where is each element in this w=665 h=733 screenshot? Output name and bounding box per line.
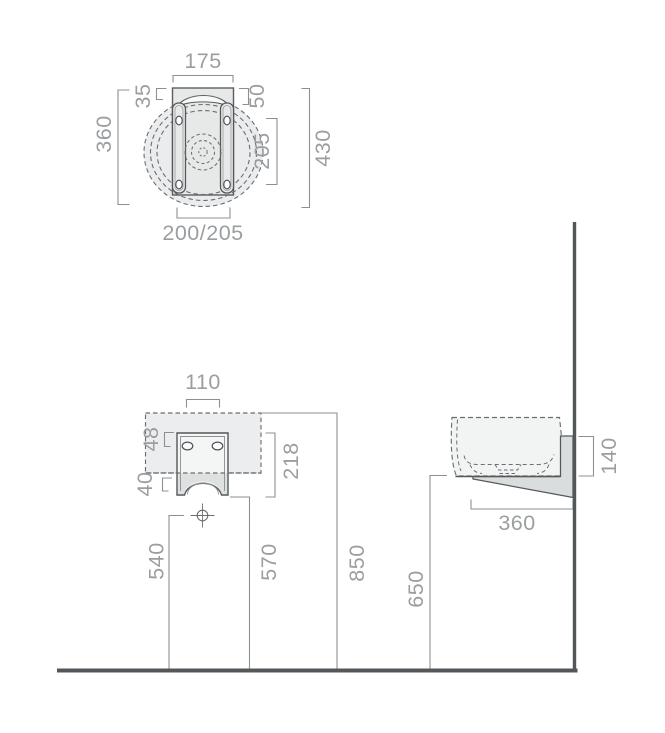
dim-label-hole-spacing: 205: [250, 132, 274, 169]
dim-bracket-base-width: [177, 208, 230, 219]
dim-label-rim-height: 850: [345, 544, 369, 581]
dim-label-bracket-height: 218: [279, 442, 303, 479]
dim-label-bracket-bottom-height: 570: [257, 543, 281, 580]
dim-bracket-rim-offset: [157, 89, 167, 100]
dim-label-arch-height: 40: [133, 472, 157, 497]
technical-drawing: 175 35 50 360 205 430 200/205 110: [0, 0, 665, 733]
basin-side-hidden-outline: [451, 418, 561, 477]
dim-label-side-depth: 360: [498, 511, 535, 535]
dim-line-clearance-height: [430, 476, 447, 669]
dim-label-hole-offset: 48: [139, 427, 163, 452]
bracket-hole-left: [182, 442, 193, 450]
dim-bracket-total-depth: [302, 89, 310, 208]
dim-bracket-depth: [118, 90, 130, 205]
dim-line-drain-height: [169, 516, 184, 669]
front-view: 110 48 40 218 540 570 850: [133, 370, 369, 669]
dim-label-fixing-width: 110: [185, 370, 221, 394]
dim-bracket-arch-height: [163, 478, 173, 491]
fixing-hole: [224, 180, 230, 189]
dim-bracket-bracket-height: [266, 433, 276, 497]
side-view: 140 360 650: [404, 418, 621, 669]
top-view: 175 35 50 360 205 430 200/205: [92, 49, 335, 245]
fixing-hole: [224, 116, 230, 125]
dim-label-rim-offset: 35: [131, 84, 155, 109]
bracket-hole-right: [212, 442, 223, 450]
dim-label-rear-height: 140: [597, 437, 621, 474]
dim-bracket-side-depth: [471, 500, 573, 510]
dim-line-bracket-bottom-height: [230, 497, 250, 669]
dim-label-depth: 360: [92, 115, 116, 152]
dim-label-width: 175: [184, 49, 221, 73]
dim-label-total-depth: 430: [311, 129, 335, 166]
dim-label-drain-height: 540: [145, 542, 169, 579]
dim-label-clearance-height: 650: [404, 570, 428, 607]
fixing-hole: [176, 116, 182, 125]
drain-crosshair: [191, 504, 215, 528]
dim-label-base-width: 200/205: [162, 221, 243, 245]
dim-bracket-rear-height: [579, 437, 594, 477]
dim-bracket-width: [173, 76, 233, 83]
dim-label-slot-offset: 50: [245, 84, 269, 109]
fixing-hole: [176, 180, 182, 189]
dim-bracket-fixing-width: [187, 400, 220, 408]
